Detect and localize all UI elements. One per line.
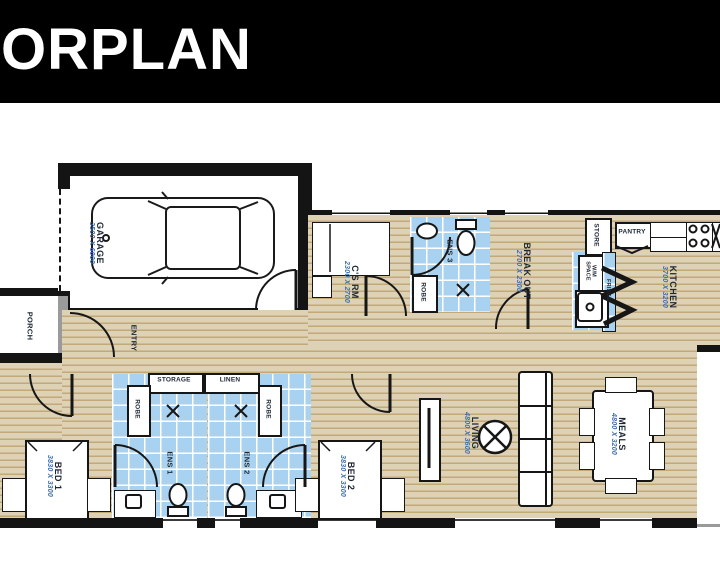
- label-fridge: FRIDGE: [605, 279, 611, 301]
- room-label-cs-rm: C'S RM 2300 X 2700: [342, 261, 360, 303]
- closet-name: PANTRY: [618, 230, 645, 237]
- room-name: BED 2: [346, 455, 356, 497]
- bed1-side-right: [87, 478, 111, 512]
- cutoff-wall-line: [697, 524, 720, 527]
- kitchen-counter-1: [650, 222, 688, 238]
- room-name: MEALS: [617, 413, 627, 455]
- page-title: ORPLAN: [1, 16, 252, 83]
- room-label-garage: GARAGE 3500 X 6000: [87, 222, 105, 264]
- label-robe-1: ROBE: [133, 399, 140, 419]
- room-name: ENS 3: [445, 239, 454, 262]
- header-banner: ORPLAN: [0, 0, 720, 103]
- closet-name: LINEN: [220, 378, 241, 385]
- dining-chair: [649, 442, 665, 470]
- room-name: GARAGE: [95, 222, 105, 264]
- closet-name: STORAGE: [157, 378, 190, 385]
- dining-chair: [605, 377, 637, 393]
- bed1-side-left: [2, 478, 26, 512]
- label-wm-space: W/M SPACE: [584, 258, 597, 284]
- room-label-breakout: BREAK OUT 2700 X 2300: [514, 242, 532, 299]
- room-dim: 3500 X 6000: [87, 222, 95, 264]
- room-label-ens2: ENS 2: [242, 451, 251, 474]
- room-dim: 3830 X 3300: [45, 455, 53, 497]
- wall-segment: [58, 163, 70, 189]
- label-store: STORE: [592, 223, 599, 246]
- dining-chair: [605, 478, 637, 494]
- room-label-entry: ENTRY: [129, 325, 138, 352]
- closet-name: ROBE: [264, 399, 271, 419]
- bed2-side-left: [295, 478, 319, 512]
- room-name: BED 1: [53, 455, 63, 497]
- label-linen: LINEN: [220, 378, 241, 385]
- room-name: C'S RM: [350, 261, 360, 303]
- label-robe-3: ROBE: [419, 282, 426, 302]
- room-label-bed2: BED 2 3830 X 3300: [338, 455, 356, 497]
- room-label-meals: MEALS 4800 X 3200: [609, 413, 627, 455]
- dining-chair: [649, 408, 665, 436]
- label-robe-2: ROBE: [264, 399, 271, 419]
- bed2-side-right: [381, 478, 405, 512]
- room-label-bed1: BED 1 3830 X 3300: [45, 455, 63, 497]
- ens1-vanity: [114, 490, 156, 518]
- tv-unit: [419, 398, 441, 482]
- room-dim: 4800 X 3200: [609, 413, 617, 455]
- room-dim: 4800 X 3600: [462, 412, 470, 454]
- closet-name: ROBE: [419, 282, 426, 302]
- room-label-ens1: ENS 1: [165, 451, 174, 474]
- room-name: BREAK OUT: [522, 242, 532, 299]
- room-name: ENS 1: [165, 451, 174, 474]
- closet-name: W/M SPACE: [584, 258, 597, 284]
- room-label-ens3: ENS 3: [445, 239, 454, 262]
- room-name: LIVING: [470, 412, 480, 454]
- floor-entry: [62, 310, 308, 363]
- dining-chair: [579, 408, 595, 436]
- kitchen-counter-2: [650, 237, 688, 252]
- room-name: PORCH: [25, 312, 34, 341]
- room-label-porch: PORCH: [25, 312, 34, 341]
- cooktop: [686, 222, 714, 252]
- room-name: ENTRY: [129, 325, 138, 352]
- label-pantry: PANTRY: [618, 230, 645, 237]
- label-storage: STORAGE: [157, 378, 190, 385]
- room-label-living: LIVING 4800 X 3600: [462, 412, 480, 454]
- kitchen-corner-unit: [712, 222, 720, 252]
- dining-chair: [579, 442, 595, 470]
- room-label-kitchen: KITCHEN 3700 X 3200: [660, 266, 678, 309]
- closet-name: FRIDGE: [605, 279, 611, 301]
- floorplan-screenshot: ORPLAN: [0, 0, 720, 587]
- room-dim: 2700 X 2300: [514, 242, 522, 299]
- room-dim: 3700 X 3200: [660, 266, 668, 309]
- room-dim: 2300 X 2700: [342, 261, 350, 303]
- closet-name: STORE: [592, 223, 599, 246]
- room-name: KITCHEN: [668, 266, 678, 309]
- room-name: ENS 2: [242, 451, 251, 474]
- cs-rm-side-table: [312, 276, 332, 298]
- wall-segment: [0, 353, 70, 363]
- room-dim: 3830 X 3300: [338, 455, 346, 497]
- wall-segment: [58, 163, 312, 176]
- closet-name: ROBE: [133, 399, 140, 419]
